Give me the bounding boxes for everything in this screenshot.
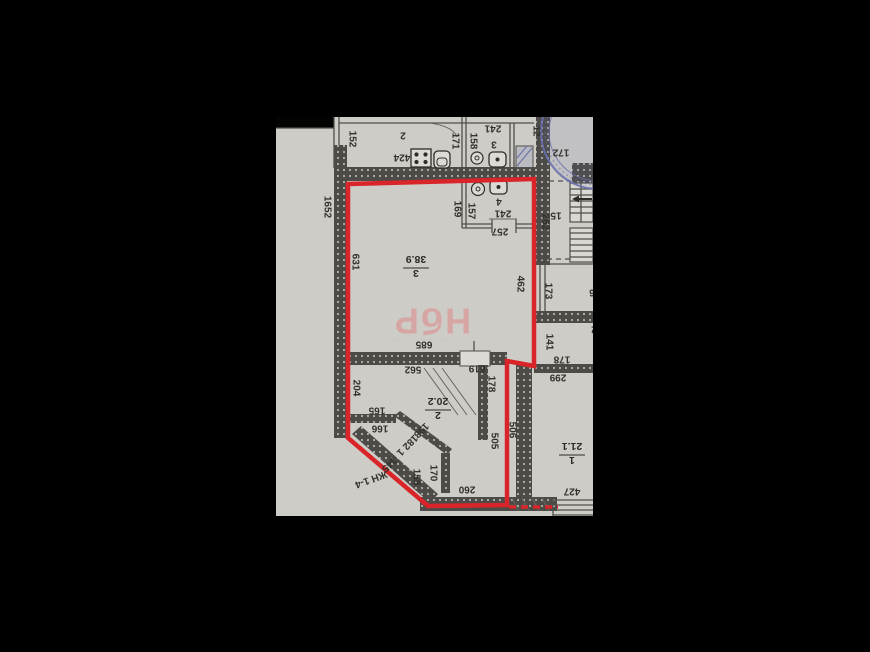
floor-plan-canvas: НбР ·························· 152165263… [0,0,870,652]
floor-plan-photo: НбР ·························· 152165263… [0,0,870,652]
photo-tint [276,117,593,516]
